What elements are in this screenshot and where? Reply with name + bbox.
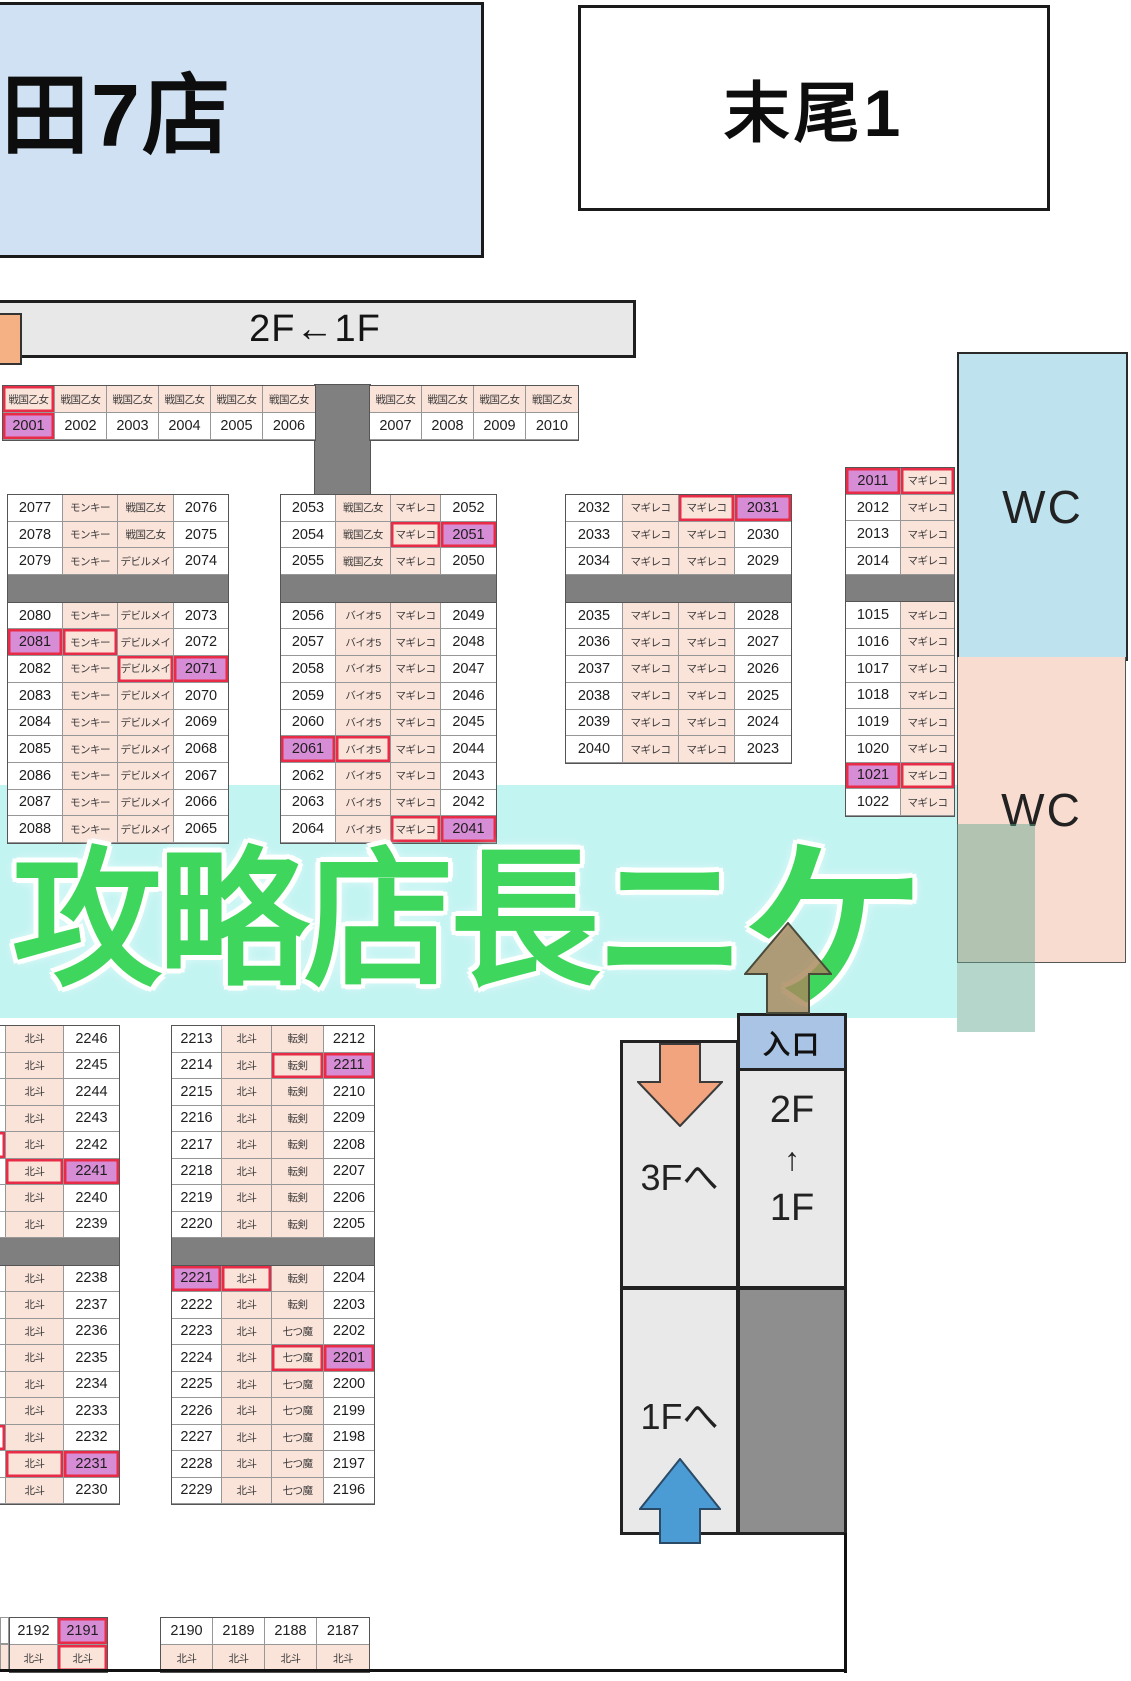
stairwell-block bbox=[737, 1287, 847, 1535]
machine-number-cell: 2060 bbox=[281, 710, 336, 737]
machine-name-cell: マギレコ bbox=[623, 710, 679, 737]
machine-row: 2037マギレコマギレコ2026 bbox=[566, 656, 791, 683]
machine-number-cell: 2036 bbox=[566, 629, 623, 656]
machine-name-cell: モンキー bbox=[63, 763, 118, 790]
machine-name-cell: 北斗 bbox=[6, 1106, 64, 1133]
machine-row: 2034マギレコマギレコ2029 bbox=[566, 548, 791, 575]
block-g: 21922191北斗北斗 bbox=[9, 1617, 108, 1673]
wc-room-top: WC bbox=[957, 352, 1128, 661]
machine-number-cell: 2243 bbox=[64, 1106, 119, 1133]
machine-number-cell: 2072 bbox=[174, 629, 228, 656]
machine-row: 2053戦国乙女マギレコ2052 bbox=[281, 495, 496, 522]
machine-number-cell: 2204 bbox=[324, 1266, 374, 1293]
machine-row: 2081モンキーデビルメイ2072 bbox=[8, 629, 228, 656]
block-e: 2213北斗転剣22122214北斗転剣22112215北斗転剣22102216… bbox=[171, 1025, 375, 1505]
machine-number-cell: 2213 bbox=[172, 1026, 222, 1053]
machine-row: 2056バイオ5マギレコ2049 bbox=[281, 603, 496, 630]
machine-row: 2080モンキーデビルメイ2073 bbox=[8, 603, 228, 630]
machine-number-cell: 2009 bbox=[474, 413, 526, 440]
machine-name-cell: 北斗 bbox=[58, 1645, 107, 1672]
machine-number-cell: 2067 bbox=[174, 763, 228, 790]
machine-name-cell: マギレコ bbox=[623, 656, 679, 683]
machine-number-cell: 2227 bbox=[172, 1425, 222, 1452]
machine-row: 1021マギレコ bbox=[846, 763, 954, 790]
floor-direction-strip: 2F←1F bbox=[0, 300, 636, 358]
machine-row: 2086モンキーデビルメイ2067 bbox=[8, 763, 228, 790]
machine-number-cell: 2192 bbox=[10, 1618, 58, 1645]
stairs-2f-1f: 2F ↑ 1F bbox=[737, 1068, 847, 1289]
machine-number-cell: 2058 bbox=[281, 656, 336, 683]
machine-name-cell: 北斗 bbox=[6, 1132, 64, 1159]
machine-name-cell: マギレコ bbox=[391, 629, 441, 656]
machine-name-cell: マギレコ bbox=[679, 603, 735, 630]
machine-row: 北斗2234 bbox=[0, 1372, 119, 1399]
machine-number-cell: 2202 bbox=[324, 1319, 374, 1346]
machine-number-cell: 2203 bbox=[324, 1292, 374, 1319]
machine-name-cell: 戦国乙女 bbox=[3, 386, 55, 413]
machine-name-cell: マギレコ bbox=[623, 548, 679, 575]
machine-name-cell: マギレコ bbox=[623, 736, 679, 763]
machine-number-cell: 2057 bbox=[281, 629, 336, 656]
machine-row: 2223北斗七つ魔2202 bbox=[172, 1319, 374, 1346]
strip-left: 戦国乙女戦国乙女戦国乙女戦国乙女戦国乙女戦国乙女2001200220032004… bbox=[2, 385, 316, 441]
machine-row: 北斗2243 bbox=[0, 1106, 119, 1133]
machine-number-cell: 2037 bbox=[566, 656, 623, 683]
machine-row: 1015マギレコ bbox=[846, 602, 954, 629]
machine-number-cell: 2002 bbox=[55, 413, 107, 440]
machine-number-cell: 2196 bbox=[324, 1478, 374, 1505]
machine-name-cell: 北斗 bbox=[222, 1026, 272, 1053]
machine-number-cell: 2003 bbox=[107, 413, 159, 440]
block-h: 2190218921882187北斗北斗北斗北斗 bbox=[160, 1617, 370, 1673]
machine-name-cell: デビルメイ bbox=[118, 790, 174, 817]
machine-name-cell: マギレコ bbox=[901, 736, 954, 763]
machine-row: 北斗2241 bbox=[0, 1159, 119, 1186]
machine-number-cell: 2055 bbox=[281, 548, 336, 575]
machine-number-cell: 2201 bbox=[324, 1345, 374, 1372]
down-arrow-icon bbox=[637, 1043, 723, 1127]
machine-name-cell: 北斗 bbox=[6, 1053, 64, 1080]
machine-name-cell: 戦国乙女 bbox=[474, 386, 526, 413]
machine-row: 2215北斗転剣2210 bbox=[172, 1079, 374, 1106]
machine-number-cell: 2224 bbox=[172, 1345, 222, 1372]
machine-name-cell: マギレコ bbox=[901, 763, 954, 790]
machine-name-cell: マギレコ bbox=[391, 763, 441, 790]
machine-name-cell: マギレコ bbox=[391, 495, 441, 522]
machine-name-cell: マギレコ bbox=[901, 521, 954, 548]
machine-number-cell: 2012 bbox=[846, 495, 901, 522]
machine-name-cell: マギレコ bbox=[679, 495, 735, 522]
machine-row: 2013マギレコ bbox=[846, 521, 954, 548]
machine-number-cell: 2208 bbox=[324, 1132, 374, 1159]
machine-name-cell: 北斗 bbox=[222, 1079, 272, 1106]
machine-number-cell: 2236 bbox=[64, 1319, 119, 1346]
machine-name-cell: 戦国乙女 bbox=[370, 386, 422, 413]
machine-name-cell: マギレコ bbox=[391, 603, 441, 630]
machine-name-cell: 転剣 bbox=[272, 1132, 324, 1159]
machine-number-cell: 2043 bbox=[441, 763, 496, 790]
machine-number-cell: 2051 bbox=[441, 522, 496, 549]
machine-row: 1020マギレコ bbox=[846, 736, 954, 763]
watermark-overlay-box bbox=[957, 824, 1035, 1032]
machine-name-cell: 戦国乙女 bbox=[55, 386, 107, 413]
machine-number-cell: 2245 bbox=[64, 1053, 119, 1080]
row-divider bbox=[846, 575, 954, 603]
machine-row: 2063バイオ5マギレコ2042 bbox=[281, 790, 496, 817]
machine-number-cell: 2207 bbox=[324, 1159, 374, 1186]
machine-name-cell: 転剣 bbox=[272, 1106, 324, 1133]
machine-number-cell: 2029 bbox=[735, 548, 791, 575]
machine-name-cell: 北斗 bbox=[6, 1425, 64, 1452]
machine-number-cell: 2027 bbox=[735, 629, 791, 656]
machine-row: 1022マギレコ bbox=[846, 789, 954, 816]
machine-row: 北斗2235 bbox=[0, 1345, 119, 1372]
machine-number-cell: 2242 bbox=[64, 1132, 119, 1159]
machine-number-cell: 2086 bbox=[8, 763, 63, 790]
machine-row: 2220北斗転剣2205 bbox=[172, 1212, 374, 1239]
machine-number-cell: 2223 bbox=[172, 1319, 222, 1346]
machine-name-cell: 七つ魔 bbox=[272, 1478, 324, 1505]
machine-name-cell: モンキー bbox=[63, 522, 118, 549]
machine-number-cell: 1022 bbox=[846, 789, 901, 816]
machine-name-cell: マギレコ bbox=[679, 656, 735, 683]
machine-name-cell: 転剣 bbox=[272, 1159, 324, 1186]
machine-number-cell: 2069 bbox=[174, 710, 228, 737]
machine-name-cell: マギレコ bbox=[679, 548, 735, 575]
machine-number-cell: 2084 bbox=[8, 710, 63, 737]
machine-name-cell: デビルメイ bbox=[118, 629, 174, 656]
stairs-1f-text: 1F bbox=[770, 1189, 814, 1227]
machine-name-cell: 北斗 bbox=[317, 1645, 369, 1672]
machine-row: 北斗2240 bbox=[0, 1185, 119, 1212]
machine-name-cell: 北斗 bbox=[6, 1212, 64, 1239]
machine-number-cell: 2190 bbox=[161, 1618, 213, 1645]
machine-number-cell: 2038 bbox=[566, 683, 623, 710]
machine-name-cell: 戦国乙女 bbox=[159, 386, 211, 413]
machine-row: 1016マギレコ bbox=[846, 629, 954, 656]
machine-name-cell: マギレコ bbox=[391, 710, 441, 737]
machine-row: 2084モンキーデビルメイ2069 bbox=[8, 710, 228, 737]
machine-number-cell: 2033 bbox=[566, 522, 623, 549]
machine-name-cell: マギレコ bbox=[623, 629, 679, 656]
machine-row: 北斗2239 bbox=[0, 1212, 119, 1239]
machine-row: 2229北斗七つ魔2196 bbox=[172, 1478, 374, 1505]
cut-orange-box bbox=[0, 313, 22, 365]
machine-row: 2054戦国乙女マギレコ2051 bbox=[281, 522, 496, 549]
machine-row: 2228北斗七つ魔2197 bbox=[172, 1451, 374, 1478]
machine-row: 21922191 bbox=[10, 1618, 107, 1645]
machine-row: 2039マギレコマギレコ2024 bbox=[566, 710, 791, 737]
machine-row: 2221北斗転剣2204 bbox=[172, 1266, 374, 1293]
machine-name-cell: 戦国乙女 bbox=[118, 495, 174, 522]
machine-row: 2012マギレコ bbox=[846, 495, 954, 522]
machine-name-cell: 転剣 bbox=[272, 1266, 324, 1293]
machine-name-cell: 戦国乙女 bbox=[336, 495, 391, 522]
machine-row: 2213北斗転剣2212 bbox=[172, 1026, 374, 1053]
machine-number-cell: 2044 bbox=[441, 736, 496, 763]
machine-number-cell: 2025 bbox=[735, 683, 791, 710]
machine-name-cell: モンキー bbox=[63, 656, 118, 683]
machine-number-cell: 1017 bbox=[846, 656, 901, 683]
machine-number-cell: 2061 bbox=[281, 736, 336, 763]
machine-number-cell: 2032 bbox=[566, 495, 623, 522]
machine-row: 2055戦国乙女マギレコ2050 bbox=[281, 548, 496, 575]
wall-right bbox=[844, 1533, 847, 1673]
machine-number-cell: 2225 bbox=[172, 1372, 222, 1399]
machine-row: 2087モンキーデビルメイ2066 bbox=[8, 790, 228, 817]
machine-name-cell: 七つ魔 bbox=[272, 1451, 324, 1478]
machine-name-cell: 戦国乙女 bbox=[336, 548, 391, 575]
machine-number-cell: 2220 bbox=[172, 1212, 222, 1239]
machine-number-cell: 2082 bbox=[8, 656, 63, 683]
machine-number-cell: 2010 bbox=[526, 413, 578, 440]
machine-row: 2079モンキーデビルメイ2074 bbox=[8, 548, 228, 575]
machine-name-cell: 戦国乙女 bbox=[336, 522, 391, 549]
machine-number-cell: 2222 bbox=[172, 1292, 222, 1319]
machine-number-cell: 2212 bbox=[324, 1026, 374, 1053]
machine-name-cell: 北斗 bbox=[222, 1345, 272, 1372]
machine-row: 1018マギレコ bbox=[846, 683, 954, 710]
machine-name-cell: バイオ5 bbox=[336, 710, 391, 737]
machine-number-cell: 2246 bbox=[64, 1026, 119, 1053]
machine-row: 戦国乙女戦国乙女戦国乙女戦国乙女 bbox=[370, 386, 578, 413]
machine-name-cell: 北斗 bbox=[222, 1266, 272, 1293]
machine-name-cell: マギレコ bbox=[391, 683, 441, 710]
machine-name-cell: 戦国乙女 bbox=[263, 386, 315, 413]
machine-row: 北斗2231 bbox=[0, 1451, 119, 1478]
machine-number-cell: 1019 bbox=[846, 709, 901, 736]
machine-number-cell: 2199 bbox=[324, 1398, 374, 1425]
machine-row: 北斗2242 bbox=[0, 1132, 119, 1159]
machine-name-cell: モンキー bbox=[63, 683, 118, 710]
machine-name-cell: デビルメイ bbox=[118, 548, 174, 575]
machine-number-cell: 2205 bbox=[324, 1212, 374, 1239]
machine-name-cell: デビルメイ bbox=[118, 710, 174, 737]
cut-cell bbox=[0, 1644, 9, 1671]
machine-name-cell: 戦国乙女 bbox=[107, 386, 159, 413]
stairs-2f-text: 2F bbox=[770, 1091, 814, 1129]
floor-direction-label: 2F←1F bbox=[249, 308, 381, 351]
machine-name-cell: 北斗 bbox=[213, 1645, 265, 1672]
machine-number-cell: 2059 bbox=[281, 683, 336, 710]
machine-name-cell: 七つ魔 bbox=[272, 1372, 324, 1399]
machine-row: 2077モンキー戦国乙女2076 bbox=[8, 495, 228, 522]
machine-number-cell: 2070 bbox=[174, 683, 228, 710]
machine-number-cell: 2235 bbox=[64, 1345, 119, 1372]
machine-number-cell: 2075 bbox=[174, 522, 228, 549]
machine-name-cell: モンキー bbox=[63, 629, 118, 656]
machine-name-cell: 転剣 bbox=[272, 1292, 324, 1319]
machine-number-cell: 2232 bbox=[64, 1425, 119, 1452]
machine-row: 2032マギレコマギレコ2031 bbox=[566, 495, 791, 522]
machine-name-cell: マギレコ bbox=[901, 709, 954, 736]
block-f: 北斗2246北斗2245北斗2244北斗2243北斗2242北斗2241北斗22… bbox=[0, 1025, 120, 1505]
machine-row: 2014マギレコ bbox=[846, 548, 954, 575]
machine-name-cell: 北斗 bbox=[222, 1398, 272, 1425]
machine-row: 2219北斗転剣2206 bbox=[172, 1185, 374, 1212]
machine-name-cell: マギレコ bbox=[901, 683, 954, 710]
machine-number-cell: 2221 bbox=[172, 1266, 222, 1293]
machine-number-cell: 2074 bbox=[174, 548, 228, 575]
machine-number-cell: 2234 bbox=[64, 1372, 119, 1399]
machine-name-cell: 北斗 bbox=[6, 1478, 64, 1505]
row-divider bbox=[8, 575, 228, 603]
floor-map: 田7店 末尾1 2F←1F WC WC 攻略店長ニケ 入口 3Fへ 2F ↑ bbox=[0, 0, 1131, 1681]
machine-number-cell: 2045 bbox=[441, 710, 496, 737]
machine-name-cell: マギレコ bbox=[901, 548, 954, 575]
machine-number-cell: 2187 bbox=[317, 1618, 369, 1645]
machine-number-cell: 2053 bbox=[281, 495, 336, 522]
machine-name-cell: 北斗 bbox=[222, 1478, 272, 1505]
machine-number-cell: 2066 bbox=[174, 790, 228, 817]
machine-row: 北斗2244 bbox=[0, 1079, 119, 1106]
machine-number-cell: 2001 bbox=[3, 413, 55, 440]
machine-number-cell: 2068 bbox=[174, 736, 228, 763]
machine-row: 1017マギレコ bbox=[846, 656, 954, 683]
wall-bottom bbox=[0, 1669, 846, 1672]
machine-number-cell: 2056 bbox=[281, 603, 336, 630]
row-divider bbox=[172, 1238, 374, 1266]
machine-row: 2226北斗七つ魔2199 bbox=[172, 1398, 374, 1425]
machine-number-cell: 2226 bbox=[172, 1398, 222, 1425]
machine-name-cell: マギレコ bbox=[391, 790, 441, 817]
machine-number-cell: 2039 bbox=[566, 710, 623, 737]
machine-number-cell: 2241 bbox=[64, 1159, 119, 1186]
entrance-up-arrow-icon bbox=[744, 922, 832, 1014]
machine-row: 北斗2233 bbox=[0, 1398, 119, 1425]
machine-number-cell: 2046 bbox=[441, 683, 496, 710]
machine-name-cell: 転剣 bbox=[272, 1079, 324, 1106]
machine-name-cell: マギレコ bbox=[623, 522, 679, 549]
machine-name-cell: マギレコ bbox=[391, 736, 441, 763]
machine-number-cell: 2211 bbox=[324, 1053, 374, 1080]
machine-number-cell: 1021 bbox=[846, 763, 901, 790]
machine-row: 2217北斗転剣2208 bbox=[172, 1132, 374, 1159]
machine-name-cell: マギレコ bbox=[901, 789, 954, 816]
machine-name-cell: マギレコ bbox=[901, 602, 954, 629]
machine-name-cell: マギレコ bbox=[679, 522, 735, 549]
machine-name-cell: 戦国乙女 bbox=[211, 386, 263, 413]
machine-number-cell: 2063 bbox=[281, 790, 336, 817]
machine-name-cell: デビルメイ bbox=[118, 656, 174, 683]
machine-name-cell: 北斗 bbox=[222, 1319, 272, 1346]
machine-name-cell: デビルメイ bbox=[118, 683, 174, 710]
machine-number-cell: 2237 bbox=[64, 1292, 119, 1319]
machine-number-cell: 2050 bbox=[441, 548, 496, 575]
machine-name-cell: 戦国乙女 bbox=[422, 386, 474, 413]
machine-name-cell: 北斗 bbox=[222, 1185, 272, 1212]
machine-number-cell: 2028 bbox=[735, 603, 791, 630]
machine-name-cell: 北斗 bbox=[222, 1372, 272, 1399]
machine-number-cell: 2071 bbox=[174, 656, 228, 683]
machine-name-cell: 北斗 bbox=[6, 1026, 64, 1053]
machine-row: 北斗2236 bbox=[0, 1319, 119, 1346]
machine-row: 2058バイオ5マギレコ2047 bbox=[281, 656, 496, 683]
machine-name-cell: モンキー bbox=[63, 495, 118, 522]
machine-name-cell: マギレコ bbox=[623, 495, 679, 522]
machine-name-cell: マギレコ bbox=[391, 522, 441, 549]
machine-number-cell: 2078 bbox=[8, 522, 63, 549]
machine-name-cell: 北斗 bbox=[222, 1292, 272, 1319]
up-arrow-glyph: ↑ bbox=[784, 1143, 800, 1175]
machine-name-cell: マギレコ bbox=[901, 656, 954, 683]
machine-row: 北斗2237 bbox=[0, 1292, 119, 1319]
machine-number-cell: 2042 bbox=[441, 790, 496, 817]
machine-name-cell: 北斗 bbox=[265, 1645, 317, 1672]
machine-name-cell: マギレコ bbox=[391, 656, 441, 683]
machine-number-cell: 2206 bbox=[324, 1185, 374, 1212]
machine-number-cell: 2054 bbox=[281, 522, 336, 549]
section-box: 末尾1 bbox=[578, 5, 1050, 211]
machine-number-cell: 2013 bbox=[846, 521, 901, 548]
machine-name-cell: マギレコ bbox=[901, 468, 954, 495]
machine-row: 2224北斗七つ魔2201 bbox=[172, 1345, 374, 1372]
machine-number-cell: 2189 bbox=[213, 1618, 265, 1645]
machine-number-cell: 2023 bbox=[735, 736, 791, 763]
block-a: 2077モンキー戦国乙女20762078モンキー戦国乙女20752079モンキー… bbox=[7, 494, 229, 844]
machine-number-cell: 2031 bbox=[735, 495, 791, 522]
machine-row: 1019マギレコ bbox=[846, 709, 954, 736]
machine-number-cell: 2083 bbox=[8, 683, 63, 710]
machine-name-cell: 北斗 bbox=[10, 1645, 58, 1672]
machine-name-cell: マギレコ bbox=[623, 603, 679, 630]
machine-name-cell: マギレコ bbox=[679, 710, 735, 737]
machine-name-cell: 転剣 bbox=[272, 1053, 324, 1080]
machine-number-cell: 2244 bbox=[64, 1079, 119, 1106]
machine-name-cell: モンキー bbox=[63, 790, 118, 817]
machine-name-cell: 転剣 bbox=[272, 1026, 324, 1053]
machine-number-cell: 2035 bbox=[566, 603, 623, 630]
store-name: 田7店 bbox=[1, 45, 232, 172]
machine-number-cell: 1020 bbox=[846, 736, 901, 763]
machine-number-cell: 2210 bbox=[324, 1079, 374, 1106]
row-divider bbox=[281, 575, 496, 603]
machine-row: 2190218921882187 bbox=[161, 1618, 369, 1645]
machine-number-cell: 2216 bbox=[172, 1106, 222, 1133]
machine-name-cell: 北斗 bbox=[222, 1451, 272, 1478]
machine-row: 200120022003200420052006 bbox=[3, 413, 315, 440]
machine-row: 2007200820092010 bbox=[370, 413, 578, 440]
section-label: 末尾1 bbox=[724, 60, 905, 156]
machine-row: 2214北斗転剣2211 bbox=[172, 1053, 374, 1080]
store-name-box: 田7店 bbox=[0, 2, 484, 258]
machine-name-cell: モンキー bbox=[63, 710, 118, 737]
machine-name-cell: 北斗 bbox=[222, 1132, 272, 1159]
machine-number-cell: 1015 bbox=[846, 602, 901, 629]
machine-name-cell: マギレコ bbox=[679, 683, 735, 710]
machine-number-cell: 2008 bbox=[422, 413, 474, 440]
machine-number-cell: 2062 bbox=[281, 763, 336, 790]
cut-cell bbox=[0, 1617, 9, 1644]
machine-row: 2035マギレコマギレコ2028 bbox=[566, 603, 791, 630]
machine-row: 北斗北斗北斗北斗 bbox=[161, 1645, 369, 1672]
machine-number-cell: 2214 bbox=[172, 1053, 222, 1080]
machine-name-cell: 北斗 bbox=[6, 1079, 64, 1106]
machine-row: 北斗2238 bbox=[0, 1266, 119, 1293]
machine-number-cell: 2218 bbox=[172, 1159, 222, 1186]
machine-row: 2227北斗七つ魔2198 bbox=[172, 1425, 374, 1452]
machine-row: 2057バイオ5マギレコ2048 bbox=[281, 629, 496, 656]
machine-row: 2218北斗転剣2207 bbox=[172, 1159, 374, 1186]
watermark-text-main: 攻略店長ニ bbox=[12, 836, 742, 1004]
wc-top-label: WC bbox=[1002, 480, 1083, 534]
machine-name-cell: モンキー bbox=[63, 603, 118, 630]
machine-number-cell: 2073 bbox=[174, 603, 228, 630]
machine-name-cell: 転剣 bbox=[272, 1212, 324, 1239]
stairs-3f-label: 3Fへ bbox=[640, 1149, 718, 1201]
machine-name-cell: マギレコ bbox=[391, 548, 441, 575]
machine-row: 2038マギレコマギレコ2025 bbox=[566, 683, 791, 710]
